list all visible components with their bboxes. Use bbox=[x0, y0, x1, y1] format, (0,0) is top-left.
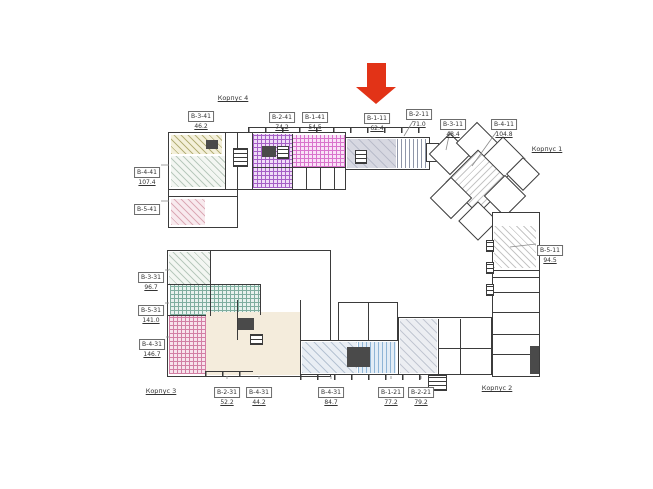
unit-label-selected[interactable]: В-1-1162.4 bbox=[364, 105, 390, 132]
unit-label[interactable]: В-5-1194.5 bbox=[537, 237, 563, 264]
unit-label[interactable]: В-5-31141.0 bbox=[138, 297, 164, 324]
unit-label[interactable]: В-4-31146.7 bbox=[139, 331, 165, 358]
selection-arrow-icon bbox=[356, 87, 396, 104]
unit-area-value: 146.7 bbox=[139, 351, 165, 358]
unit-area-value: 52.2 bbox=[214, 399, 240, 406]
unit-code[interactable]: В-2-21 bbox=[408, 387, 434, 398]
unit-code[interactable]: В-2-41 bbox=[269, 112, 295, 123]
unit-code[interactable]: В-4-31 bbox=[139, 339, 165, 350]
unit-code[interactable]: В-1-21 bbox=[378, 387, 404, 398]
unit-code[interactable]: В-1-41 bbox=[302, 112, 328, 123]
unit-code[interactable]: В-3-41 bbox=[188, 111, 214, 122]
unit-area-value: 141.0 bbox=[138, 317, 164, 324]
unit-label[interactable]: В-5-41 bbox=[134, 196, 160, 215]
unit-code[interactable]: В-3-11 bbox=[440, 119, 466, 130]
unit-label[interactable]: В-4-3144.2 bbox=[246, 379, 272, 406]
unit-area-value: 62.4 bbox=[364, 125, 390, 132]
unit-label[interactable]: В-4-41107.4 bbox=[134, 159, 160, 186]
unit-code[interactable]: В-2-11 bbox=[406, 109, 432, 120]
unit-area-value: 79.2 bbox=[408, 399, 434, 406]
leader-line bbox=[510, 244, 536, 247]
unit-area-value: 94.5 bbox=[537, 257, 563, 264]
unit-label[interactable]: В-2-4174.2 bbox=[269, 104, 295, 131]
selection-arrow-shaft bbox=[367, 63, 386, 88]
unit-label[interactable]: В-3-1148.4 bbox=[440, 111, 466, 138]
unit-label[interactable]: В-1-2177.2 bbox=[378, 379, 404, 406]
unit-code[interactable]: В-1-11 bbox=[364, 113, 390, 124]
unit-code[interactable]: В-2-31 bbox=[214, 387, 240, 398]
unit-label[interactable]: В-3-3196.7 bbox=[138, 264, 164, 291]
unit-area-value: 71.0 bbox=[406, 121, 432, 128]
unit-code[interactable]: В-5-11 bbox=[537, 245, 563, 256]
unit-label[interactable]: В-4-11104.8 bbox=[491, 111, 517, 138]
unit-code[interactable]: В-4-31 bbox=[246, 387, 272, 398]
korpus-label: Корпус 3 bbox=[146, 387, 177, 395]
unit-area-value: 77.2 bbox=[378, 399, 404, 406]
unit-label[interactable]: В-2-1171.0 bbox=[406, 101, 432, 128]
unit-label[interactable]: В-2-2179.2 bbox=[408, 379, 434, 406]
unit-code[interactable]: В-3-31 bbox=[138, 272, 164, 283]
unit-area-value: 74.2 bbox=[269, 124, 295, 131]
unit-area-value: 46.2 bbox=[188, 123, 214, 130]
unit-label[interactable]: В-3-4146.2 bbox=[188, 103, 214, 130]
unit-area-value: 44.2 bbox=[246, 399, 272, 406]
unit-code[interactable]: В-5-41 bbox=[134, 204, 160, 215]
unit-area-value: 96.7 bbox=[138, 284, 164, 291]
unit-label[interactable]: В-4-3184.7 bbox=[318, 379, 344, 406]
unit-area-value: 48.4 bbox=[440, 131, 466, 138]
unit-area-value: 84.7 bbox=[318, 399, 344, 406]
unit-code[interactable]: В-4-41 bbox=[134, 167, 160, 178]
unit-code[interactable]: В-4-31 bbox=[318, 387, 344, 398]
floorplan-canvas: Корпус 4Корпус 1Корпус 2Корпус 3В-3-4146… bbox=[0, 0, 653, 489]
korpus-label: Корпус 2 bbox=[482, 384, 513, 392]
unit-code[interactable]: В-5-31 bbox=[138, 305, 164, 316]
korpus-label: Корпус 1 bbox=[532, 145, 563, 153]
unit-label[interactable]: В-1-4154.5 bbox=[302, 104, 328, 131]
unit-label[interactable]: В-2-3152.2 bbox=[214, 379, 240, 406]
unit-area-value: 54.5 bbox=[302, 124, 328, 131]
unit-code[interactable]: В-4-11 bbox=[491, 119, 517, 130]
korpus-label: Корпус 4 bbox=[218, 94, 249, 102]
unit-area-value: 107.4 bbox=[134, 179, 160, 186]
unit-area-value: 104.8 bbox=[491, 131, 517, 138]
